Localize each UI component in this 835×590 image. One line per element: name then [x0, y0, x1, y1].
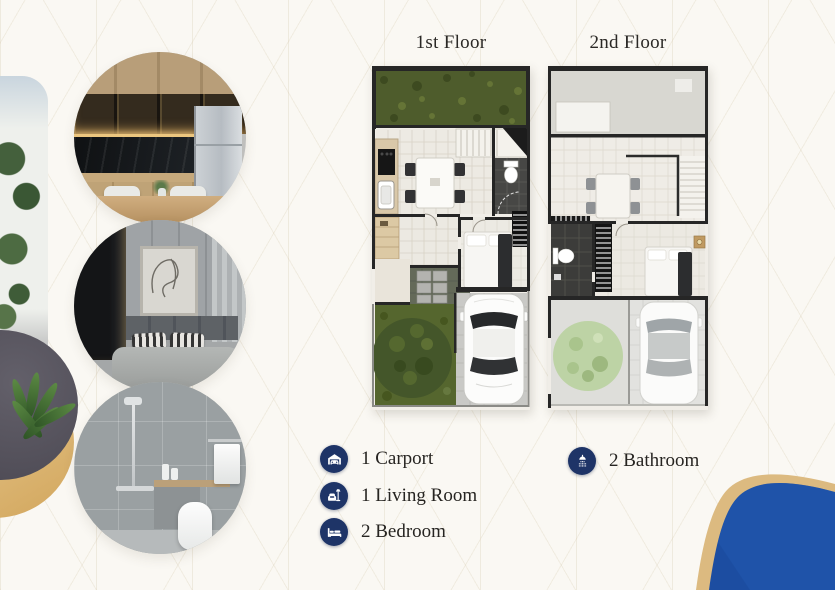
bedroom-wardrobe: [74, 220, 126, 360]
wardrobe: [595, 224, 612, 292]
bathroom-floor: [74, 530, 246, 554]
kitchen-counter: [375, 139, 398, 214]
feature-carport: 1 Carport: [320, 445, 433, 473]
car-top-view: [460, 294, 528, 404]
feature-label: 2 Bedroom: [361, 521, 446, 543]
kitchen-counter: [74, 173, 194, 182]
staircase: [456, 127, 527, 157]
towel: [214, 444, 240, 484]
kitchen-upper-cabinets: [74, 52, 246, 94]
feature-living-room: 1 Living Room: [320, 482, 477, 510]
bedroom-photo: [74, 220, 246, 392]
bedroom-icon: [320, 518, 348, 546]
bathroom-icon: [568, 447, 596, 475]
first-floor-bedroom: [461, 211, 528, 289]
feature-label: 1 Carport: [361, 448, 433, 470]
framed-art: [140, 246, 198, 316]
second-floor-bathroom: [551, 224, 592, 296]
bottom-edge: [551, 404, 705, 406]
kitchen-photo: [74, 52, 246, 224]
toiletry-bottle: [171, 468, 178, 480]
feature-bedroom: 2 Bedroom: [320, 518, 446, 546]
refrigerator-door-seam: [194, 144, 242, 146]
feature-label: 1 Living Room: [361, 485, 477, 507]
second-floor-plan: [548, 66, 708, 410]
garden-strip: [375, 71, 527, 127]
car-roof-view: [636, 302, 702, 404]
towel-rail: [208, 439, 244, 442]
corner-ribbon: [670, 468, 835, 590]
carport: [456, 293, 528, 406]
shower-bracket: [116, 486, 154, 491]
toiletry-bottle: [162, 464, 169, 480]
shower-head: [124, 397, 142, 405]
void-below: [551, 300, 705, 406]
bathroom-photo: [74, 382, 246, 554]
toilet: [178, 502, 212, 550]
living-room-icon: [320, 482, 348, 510]
carport-icon: [320, 445, 348, 473]
first-floor-title: 1st Floor: [372, 32, 530, 54]
refrigerator: [194, 106, 242, 198]
roof-deck: [551, 71, 705, 134]
shower-rail: [132, 400, 135, 490]
second-floor-title: 2nd Floor: [548, 32, 708, 54]
brochure-page: 1st Floor 2nd Floor: [0, 0, 835, 590]
kitchen-backsplash: [74, 137, 194, 173]
garden: [372, 304, 456, 407]
first-floor-plan: [372, 66, 530, 410]
